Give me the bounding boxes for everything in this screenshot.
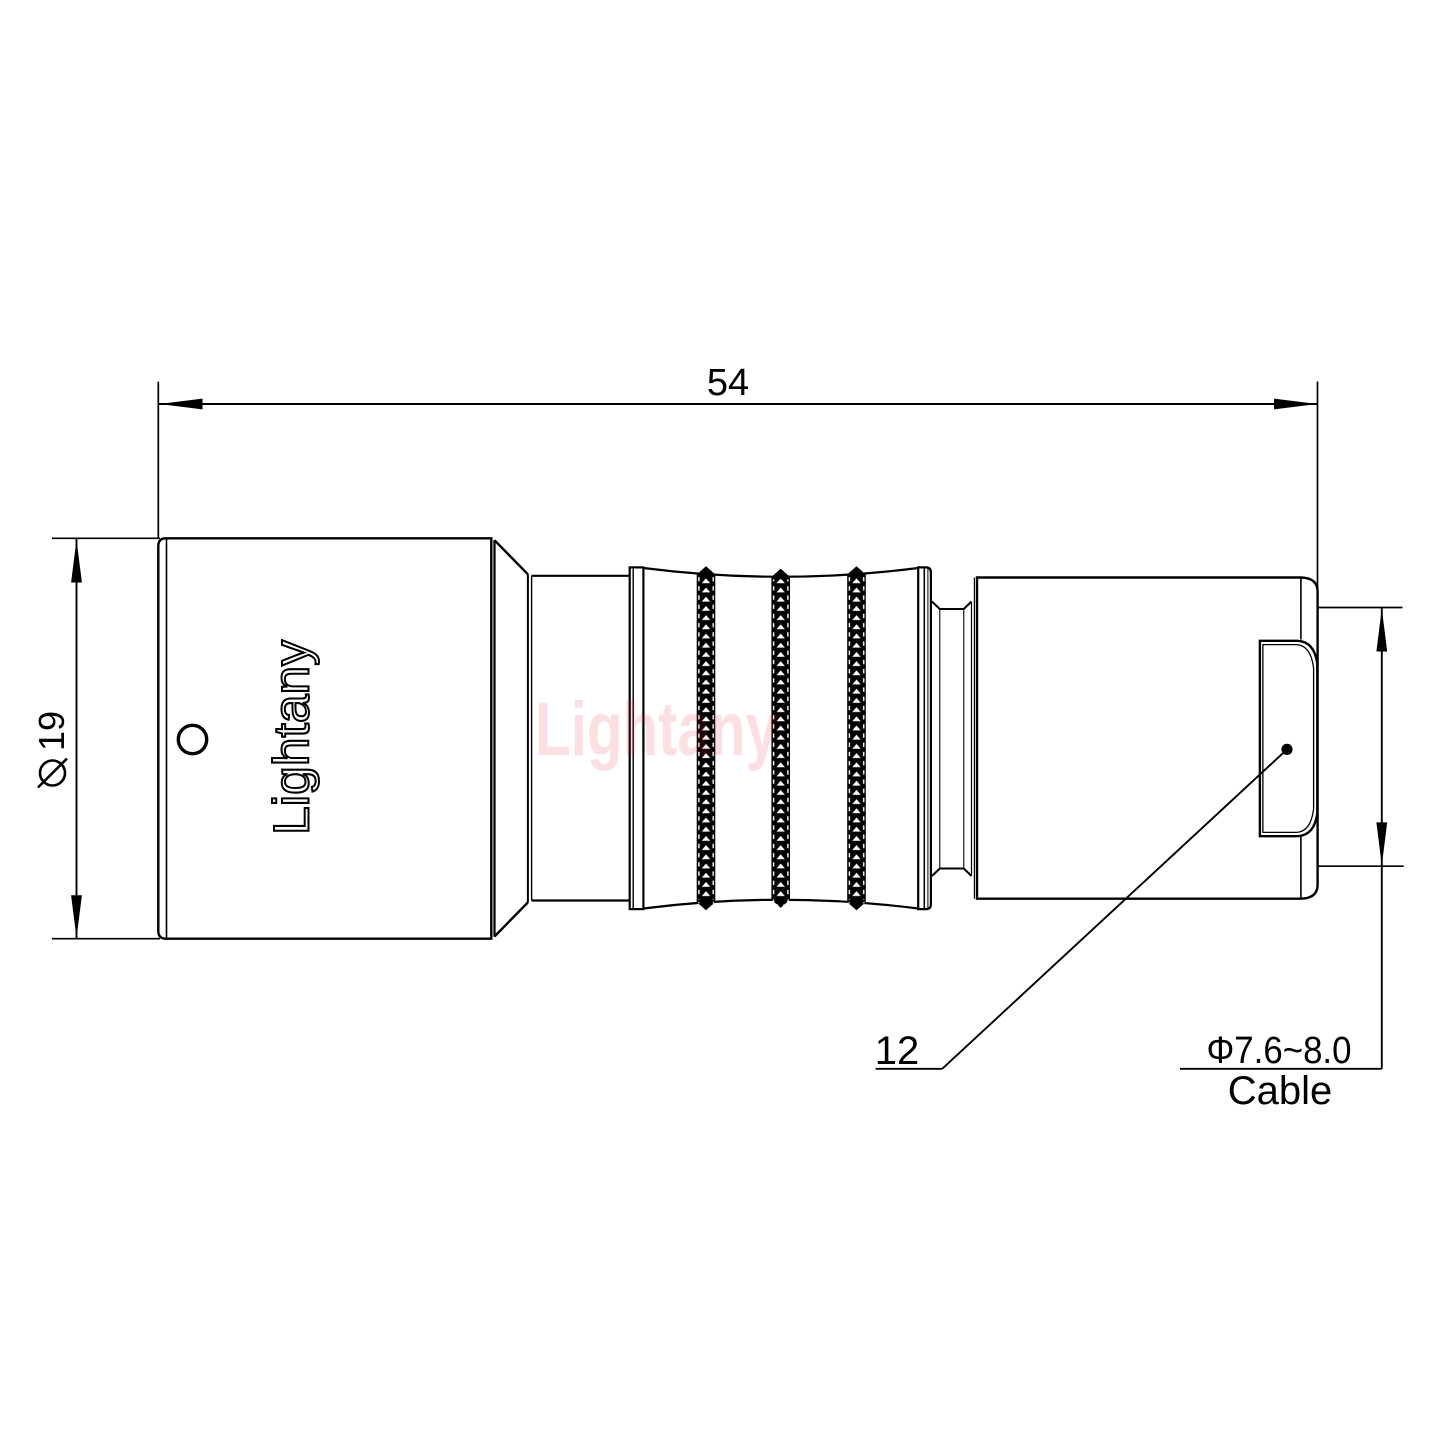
- svg-text:Φ7.6~8.0: Φ7.6~8.0: [1207, 1030, 1352, 1072]
- svg-text:Lightany: Lightany: [535, 687, 778, 772]
- svg-text:19: 19: [31, 711, 72, 751]
- svg-text:Cable: Cable: [1228, 1069, 1333, 1113]
- svg-text:12: 12: [875, 1029, 920, 1073]
- svg-text:54: 54: [707, 362, 749, 404]
- svg-text:Lightany: Lightany: [264, 640, 320, 835]
